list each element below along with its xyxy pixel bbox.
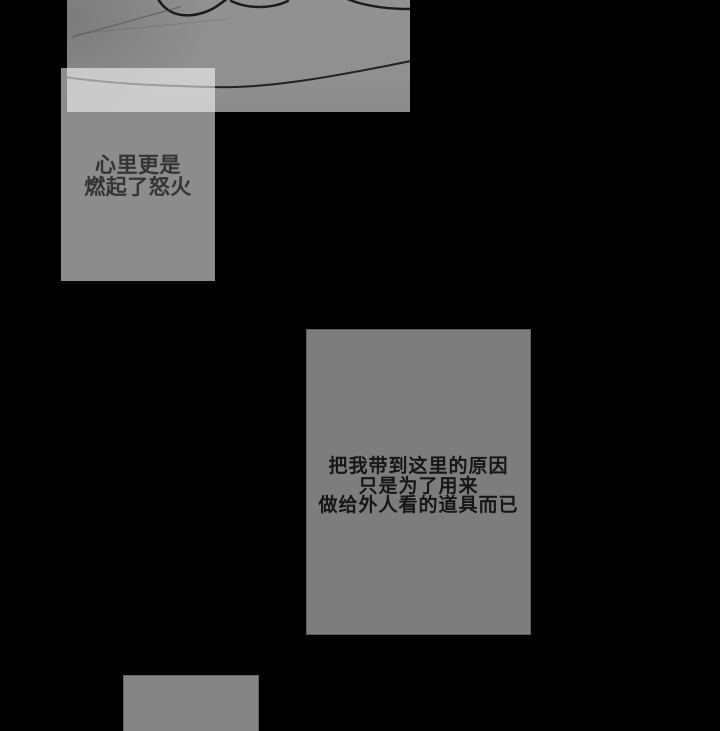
knuckle-curve-left xyxy=(157,0,229,15)
comic-page: { "page": { "kind": "webtoon-comic-page"… xyxy=(0,0,720,731)
narration-text-reason: 把我带到这里的原因 只是为了用来 做给外人看的道具而已 xyxy=(307,330,530,516)
knuckle-curve-right xyxy=(345,0,410,9)
narration-box-reason: 把我带到这里的原因 只是为了用来 做给外人看的道具而已 xyxy=(306,329,531,635)
narration-text-anger: 心里更是 燃起了怒火 xyxy=(61,68,215,198)
faint-sketch-line-2 xyxy=(75,19,227,34)
narration-box-partial xyxy=(123,675,259,731)
knuckle-curve-middle xyxy=(231,1,288,7)
narration-box-anger: 心里更是 燃起了怒火 xyxy=(61,68,215,281)
